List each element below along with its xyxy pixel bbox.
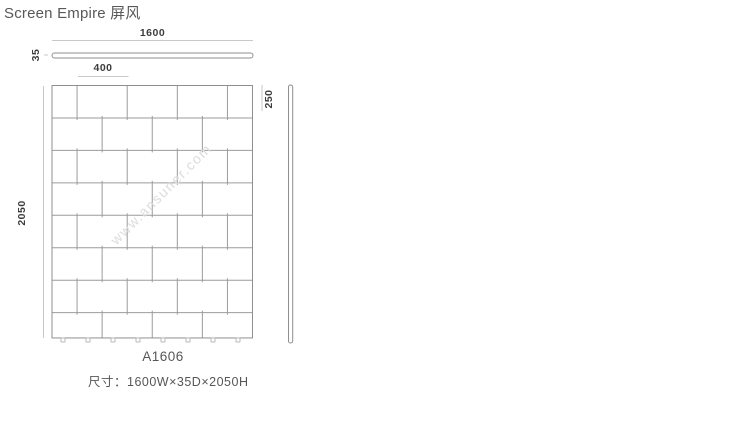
product-drawing-page: Screen Empire 屏风 1600 400 35 2050 250 ww…	[0, 0, 750, 435]
dim-label-width: 1600	[52, 27, 253, 39]
product-size-label: 尺寸：1600W×35D×2050H	[88, 371, 248, 390]
dim-label-module-height: 250	[263, 89, 275, 108]
dim-label-module-width: 400	[78, 62, 128, 74]
dim-label-depth: 35	[30, 49, 42, 62]
product-code: A1606	[92, 349, 234, 364]
dim-label-height: 2050	[16, 200, 28, 225]
